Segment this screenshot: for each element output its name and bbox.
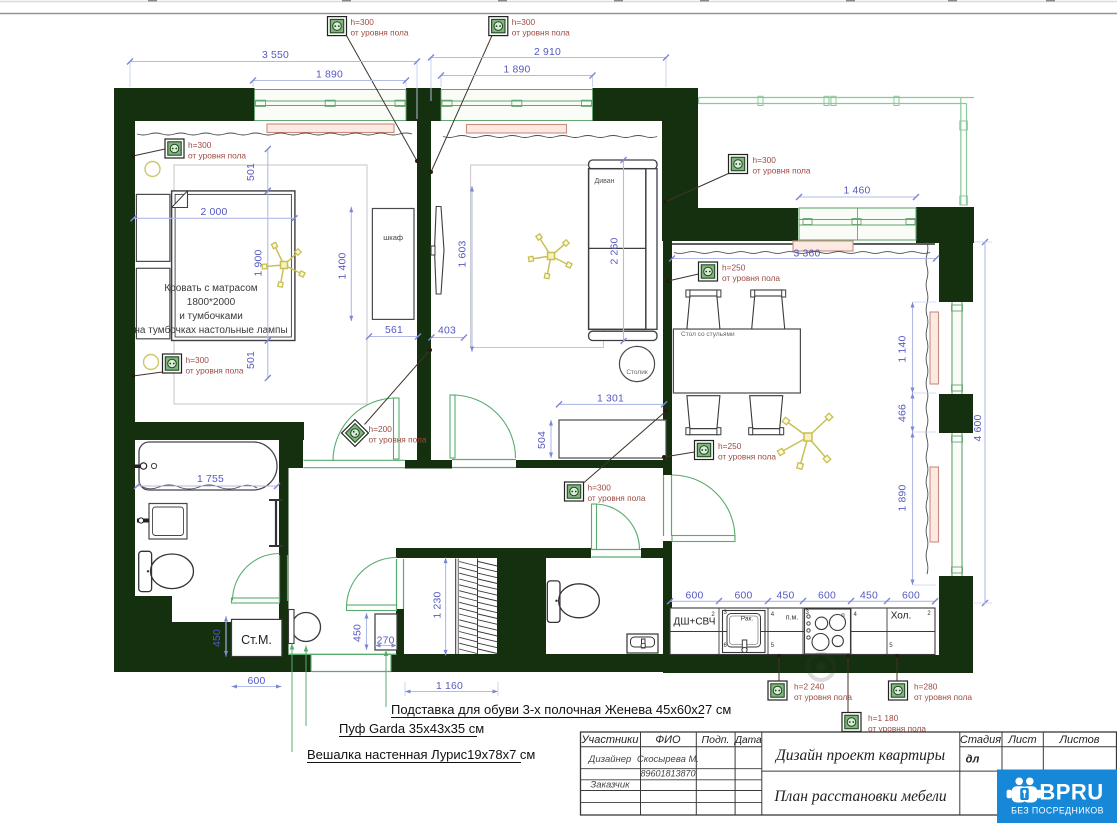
svg-text:2 000: 2 000 xyxy=(200,207,227,218)
svg-text:h=300: h=300 xyxy=(512,17,536,27)
svg-text:п.м.: п.м. xyxy=(786,615,799,622)
svg-text:Вешалка настенная Лурис19x78x7: Вешалка настенная Лурис19x78x7 см xyxy=(307,747,535,762)
svg-text:h=300: h=300 xyxy=(588,483,612,493)
svg-text:Подп.: Подп. xyxy=(702,734,730,746)
svg-text:600: 600 xyxy=(248,676,266,687)
svg-text:от уровня пола: от уровня пола xyxy=(914,692,972,702)
svg-text:1 230: 1 230 xyxy=(433,591,444,618)
svg-text:от уровня пола: от уровня пола xyxy=(351,28,409,38)
svg-text:h=200: h=200 xyxy=(369,424,393,434)
svg-text:501: 501 xyxy=(246,351,257,369)
svg-text:1 400: 1 400 xyxy=(338,252,349,279)
svg-text:ДШ+СВЧ: ДШ+СВЧ xyxy=(674,617,716,628)
svg-text:шкаф: шкаф xyxy=(383,233,403,242)
svg-text:Хол.: Хол. xyxy=(891,611,912,622)
svg-text:от уровня пола: от уровня пола xyxy=(753,166,811,176)
svg-text:561: 561 xyxy=(385,325,403,336)
svg-text:1 755: 1 755 xyxy=(197,474,224,485)
svg-text:89601813870: 89601813870 xyxy=(640,769,695,779)
svg-text:Лист: Лист xyxy=(1007,734,1036,746)
svg-text:Стадия: Стадия xyxy=(960,734,1001,746)
svg-text:Ст.М.: Ст.М. xyxy=(241,633,272,647)
svg-text:1 890: 1 890 xyxy=(503,65,530,76)
svg-text:h=280: h=280 xyxy=(914,682,938,692)
svg-text:1 900: 1 900 xyxy=(254,249,265,276)
svg-text:2 260: 2 260 xyxy=(610,237,621,264)
svg-text:Дизайнер: Дизайнер xyxy=(588,754,632,765)
svg-text:Пуф Garda 35x43x35 см: Пуф Garda 35x43x35 см xyxy=(339,721,484,736)
svg-text:3 550: 3 550 xyxy=(262,50,289,61)
svg-text:h=2 240: h=2 240 xyxy=(794,682,825,692)
svg-text:h=250: h=250 xyxy=(718,441,742,451)
svg-text:466: 466 xyxy=(898,404,909,422)
svg-text:1 603: 1 603 xyxy=(458,240,469,267)
svg-text:450: 450 xyxy=(777,591,795,602)
svg-text:2 910: 2 910 xyxy=(534,47,561,58)
svg-text:Заказчик: Заказчик xyxy=(590,780,630,791)
svg-text:ФИО: ФИО xyxy=(655,734,681,746)
svg-text:п: п xyxy=(841,612,845,619)
svg-text:h=300: h=300 xyxy=(351,17,375,27)
svg-text:БЕЗ ПОСРЕДНИКОВ: БЕЗ ПОСРЕДНИКОВ xyxy=(1011,806,1104,816)
svg-text:Кровать с матрасом: Кровать с матрасом xyxy=(164,283,257,294)
svg-text:Диван: Диван xyxy=(594,178,614,185)
svg-text:от уровня пола: от уровня пола xyxy=(794,692,852,702)
svg-text:Листов: Листов xyxy=(1058,734,1099,746)
svg-text:от уровня пола: от уровня пола xyxy=(588,493,646,503)
svg-text:Стол со стульями: Стол со стульями xyxy=(681,331,735,338)
svg-text:от уровня пола: от уровня пола xyxy=(186,366,244,376)
svg-text:403: 403 xyxy=(438,326,456,337)
svg-text:от уровня пола: от уровня пола xyxy=(718,452,776,462)
svg-text:Дата: Дата xyxy=(734,735,762,746)
svg-text:600: 600 xyxy=(686,591,704,602)
svg-text:600: 600 xyxy=(818,591,836,602)
svg-text:h=300: h=300 xyxy=(753,155,777,165)
svg-text:BPRU: BPRU xyxy=(1039,780,1103,805)
svg-text:1 140: 1 140 xyxy=(898,335,909,362)
svg-text:h=1 180: h=1 180 xyxy=(868,713,899,723)
svg-text:на тумбочках настольные лампы: на тумбочках настольные лампы xyxy=(134,324,287,336)
svg-text:h=250: h=250 xyxy=(722,263,746,273)
svg-text:1 160: 1 160 xyxy=(436,681,463,692)
svg-text:План расстановки мебели: План расстановки мебели xyxy=(773,788,947,805)
svg-text:Участники: Участники xyxy=(581,734,639,746)
svg-text:450: 450 xyxy=(353,624,364,642)
svg-text:Столик: Столик xyxy=(626,369,647,376)
svg-text:1 301: 1 301 xyxy=(597,394,624,405)
svg-text:Рак.: Рак. xyxy=(741,616,754,623)
svg-text:от уровня пола: от уровня пола xyxy=(369,435,427,445)
svg-text:от уровня пола: от уровня пола xyxy=(722,273,780,283)
svg-text:504: 504 xyxy=(537,431,548,449)
svg-text:Скосырева М.: Скосырева М. xyxy=(637,754,699,765)
svg-text:270: 270 xyxy=(377,635,395,646)
svg-text:дл: дл xyxy=(966,754,980,766)
svg-text:600: 600 xyxy=(735,591,753,602)
svg-text:1 890: 1 890 xyxy=(898,484,909,511)
svg-text:450: 450 xyxy=(212,629,223,647)
svg-text:501: 501 xyxy=(246,163,257,181)
svg-text:от уровня пола: от уровня пола xyxy=(188,151,246,161)
svg-text:1 890: 1 890 xyxy=(316,70,343,81)
svg-text:Дизайн проект квартиры: Дизайн проект квартиры xyxy=(774,747,945,764)
svg-text:h=300: h=300 xyxy=(186,355,210,365)
svg-text:600: 600 xyxy=(902,591,920,602)
svg-text:3 360: 3 360 xyxy=(793,249,820,260)
svg-text:от уровня пола: от уровня пола xyxy=(512,28,570,38)
svg-text:1800*2000: 1800*2000 xyxy=(187,297,236,308)
svg-text:Подставка для обуви 3-х полочн: Подставка для обуви 3-х полочная Женева … xyxy=(391,702,731,717)
svg-text:450: 450 xyxy=(860,591,878,602)
svg-text:h=300: h=300 xyxy=(188,140,212,150)
svg-text:4 600: 4 600 xyxy=(973,414,984,441)
svg-text:и тумбочками: и тумбочками xyxy=(179,310,243,322)
svg-text:1 460: 1 460 xyxy=(843,186,870,197)
